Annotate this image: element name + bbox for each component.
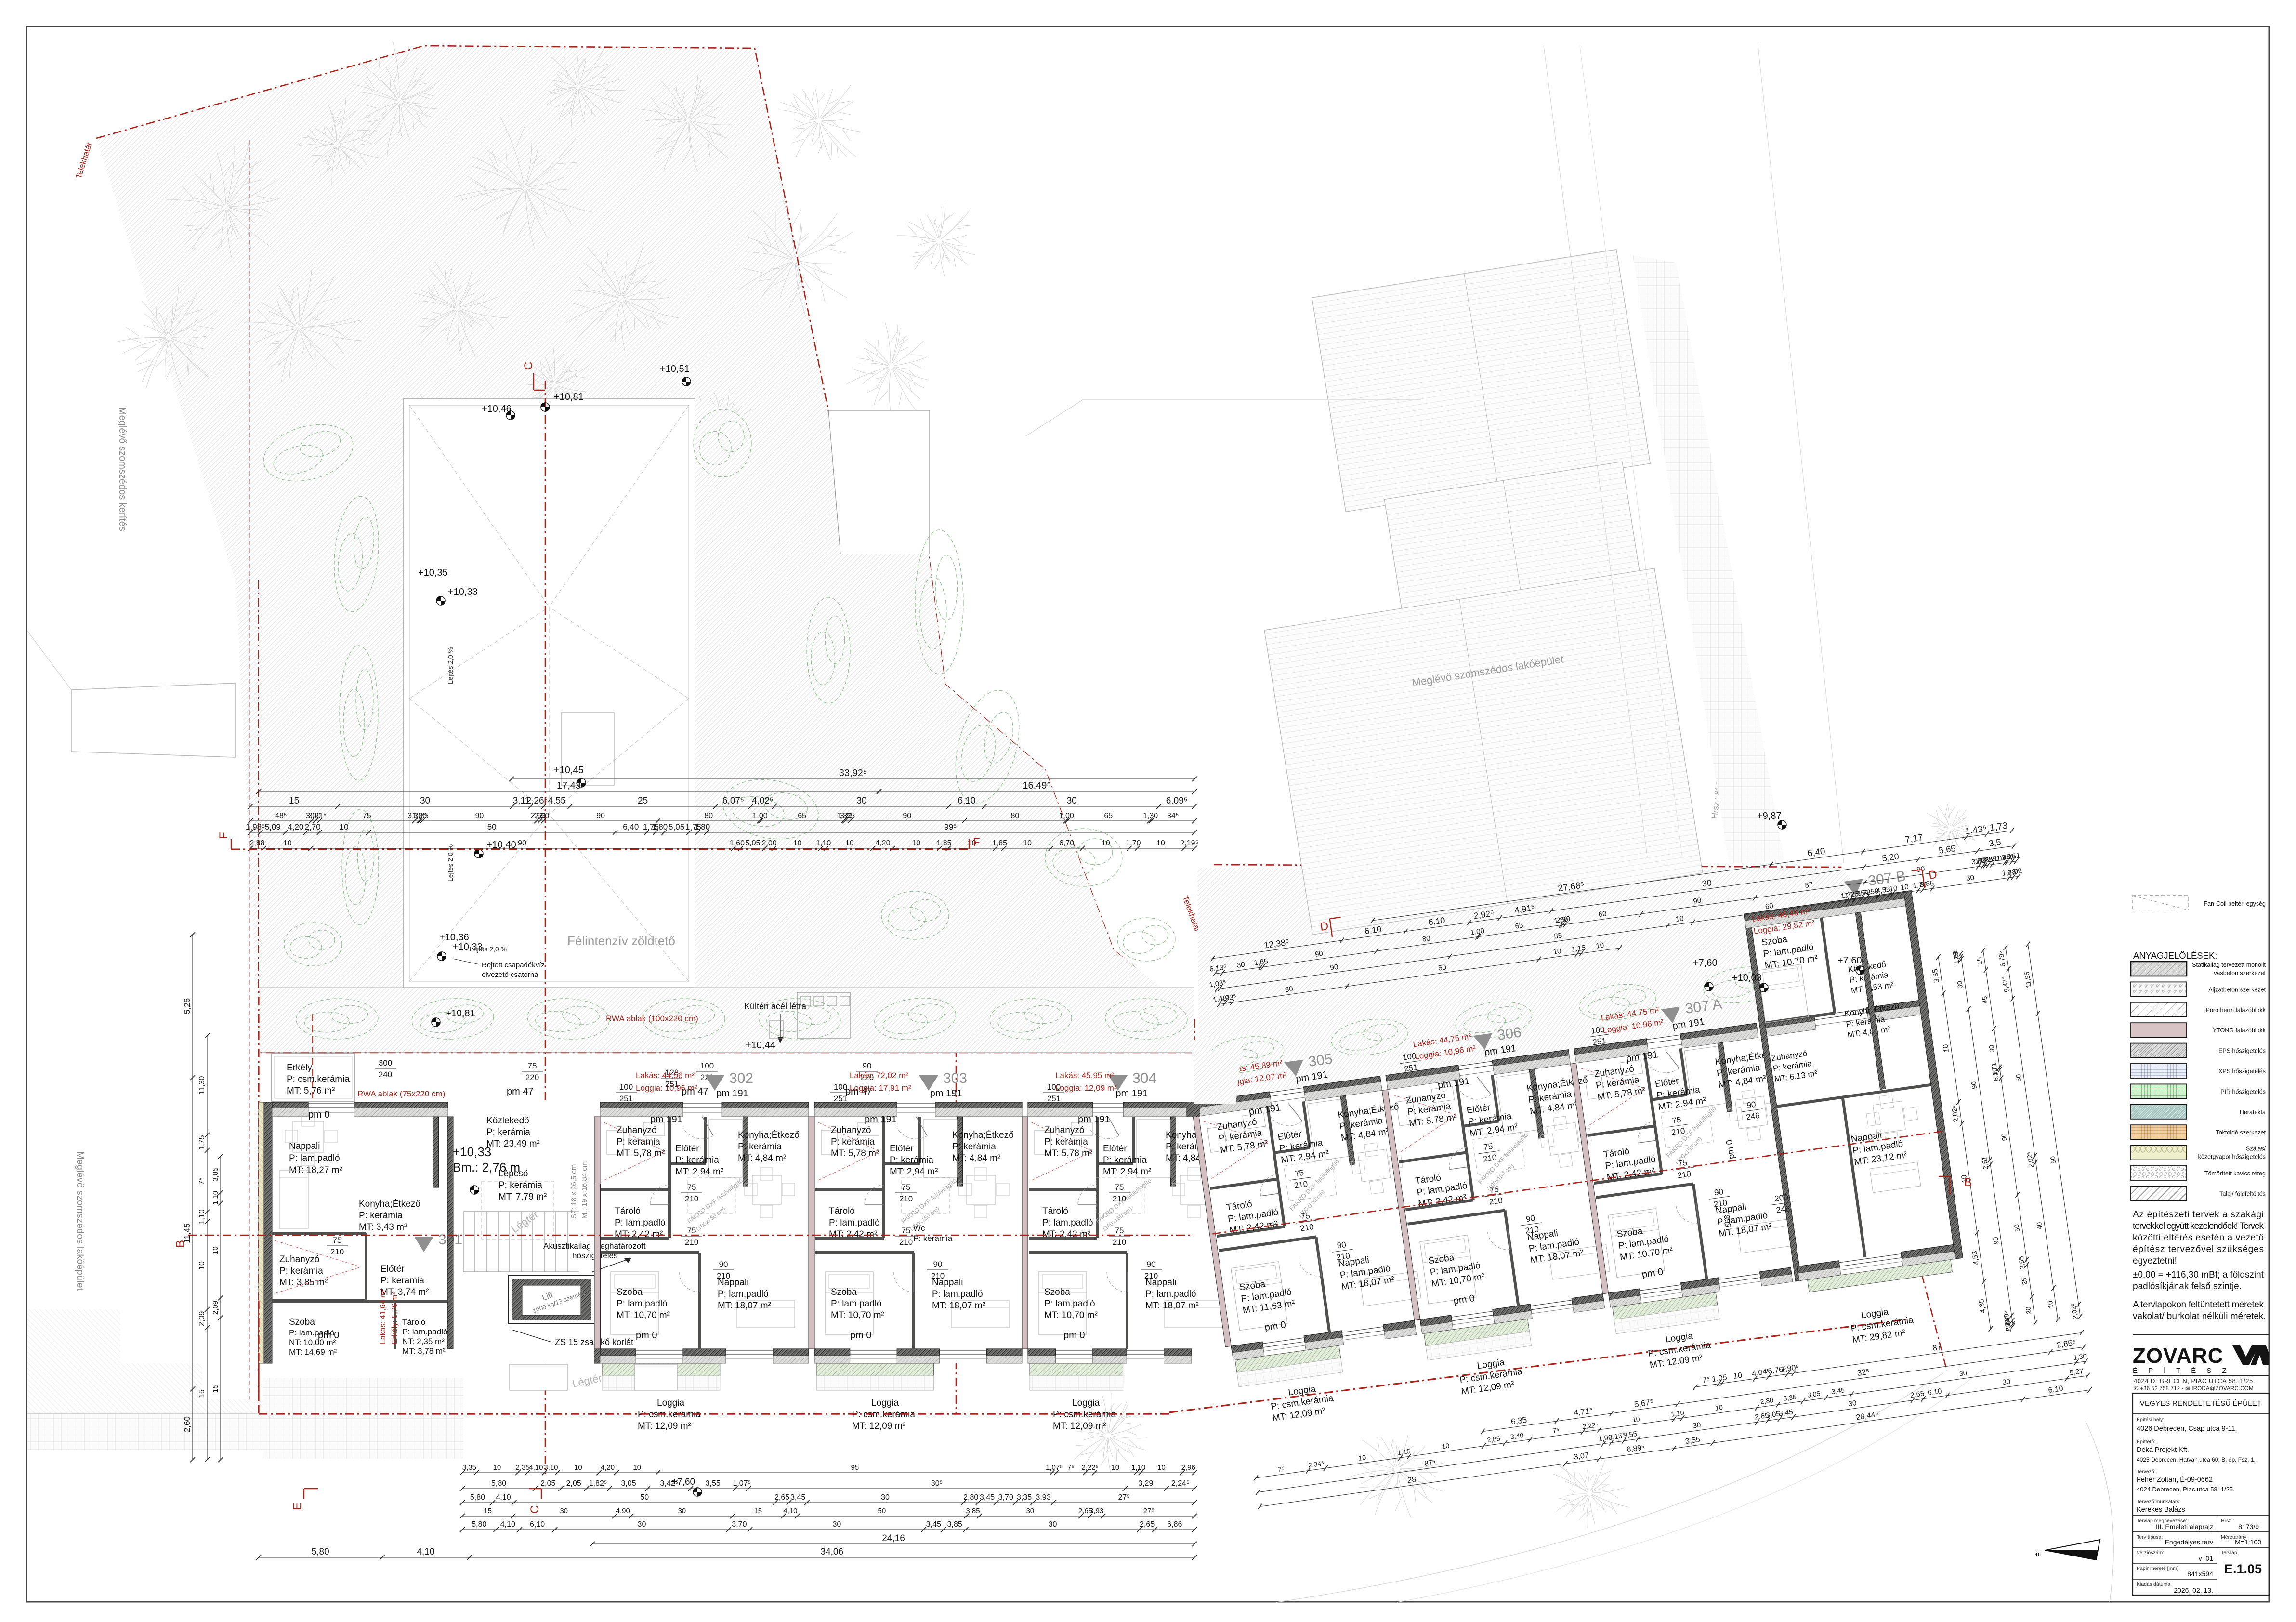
svg-text:4,02⁵: 4,02⁵ — [752, 796, 774, 806]
svg-text:210: 210 — [1294, 1179, 1309, 1190]
svg-text:75: 75 — [1115, 1226, 1124, 1235]
svg-text:3,45: 3,45 — [980, 1493, 995, 1502]
svg-text:90: 90 — [596, 812, 605, 820]
svg-text:Lakás: 72,02 m²: Lakás: 72,02 m² — [850, 1071, 908, 1080]
svg-text:10: 10 — [493, 1464, 501, 1472]
svg-text:1,80: 1,80 — [652, 822, 668, 831]
svg-text:4,10: 4,10 — [783, 1507, 797, 1515]
svg-text:MT: 2,42 m²: MT: 2,42 m² — [1042, 1229, 1090, 1240]
svg-text:5,80: 5,80 — [472, 1520, 486, 1529]
svg-text:8173/9: 8173/9 — [2238, 1523, 2259, 1530]
svg-text:6,86: 6,86 — [1167, 1520, 1182, 1529]
svg-text:pm 191: pm 191 — [930, 1088, 962, 1099]
svg-text:5,80: 5,80 — [491, 1479, 506, 1488]
svg-text:MT: 4,84 m²: MT: 4,84 m² — [738, 1153, 786, 1163]
svg-text:90: 90 — [1147, 1260, 1156, 1269]
svg-text:5,05: 5,05 — [669, 822, 684, 831]
svg-text:3,5: 3,5 — [1988, 837, 2002, 848]
svg-text:1,85: 1,85 — [936, 839, 951, 847]
svg-text:1,00: 1,00 — [1059, 812, 1074, 820]
svg-text:P: lam.padló: P: lam.padló — [615, 1218, 666, 1228]
svg-text:P: lam.padló: P: lam.padló — [829, 1218, 880, 1228]
svg-text:1,70: 1,70 — [1126, 839, 1141, 847]
svg-text:210: 210 — [899, 1238, 913, 1247]
svg-text:4,20: 4,20 — [601, 1464, 615, 1472]
svg-text:75: 75 — [687, 1183, 696, 1192]
svg-text:1,07⁵: 1,07⁵ — [1046, 1464, 1063, 1472]
svg-text:2026. 02. 13.: 2026. 02. 13. — [2174, 1586, 2213, 1594]
svg-text:Loggia: 17,91 m²: Loggia: 17,91 m² — [850, 1083, 911, 1093]
svg-text:Közlekedő: Közlekedő — [486, 1116, 529, 1126]
svg-text:75: 75 — [1489, 1185, 1499, 1195]
svg-text:tervekkel együtt kezelendőek!: tervekkel együtt kezelendőek! Tervek — [2133, 1221, 2264, 1231]
svg-text:1,75: 1,75 — [414, 812, 429, 820]
svg-text:34⁵: 34⁵ — [1167, 812, 1179, 820]
svg-text:PIR hőszigetelés: PIR hőszigetelés — [2220, 1088, 2266, 1095]
svg-text:10: 10 — [1156, 839, 1165, 847]
svg-text:210: 210 — [1524, 1225, 1539, 1236]
svg-text:MT: 3,78 m²: MT: 3,78 m² — [402, 1346, 446, 1356]
svg-text:Lejtés 2,0 %: Lejtés 2,0 % — [470, 945, 507, 953]
svg-text:30: 30 — [881, 1493, 890, 1502]
svg-text:EPS hőszigetelés: EPS hőszigetelés — [2218, 1048, 2266, 1055]
svg-text:2,22⁵: 2,22⁵ — [1081, 1464, 1098, 1472]
svg-text:F: F — [973, 836, 980, 849]
svg-text:4,55: 4,55 — [548, 796, 566, 806]
svg-text:P: lam.padló: P: lam.padló — [1145, 1289, 1196, 1299]
svg-text:+10,35: +10,35 — [418, 567, 448, 578]
svg-text:pm 191: pm 191 — [1115, 1088, 1148, 1099]
svg-text:MT: 14,69 m²: MT: 14,69 m² — [289, 1347, 337, 1357]
svg-text:kőzetgyapot hőszigetelés: kőzetgyapot hőszigetelés — [2198, 1154, 2266, 1160]
svg-text:MT: 2,94 m²: MT: 2,94 m² — [675, 1167, 723, 1177]
svg-text:30: 30 — [1959, 1369, 1968, 1378]
svg-text:MT: 5,76 m²: MT: 5,76 m² — [287, 1086, 335, 1096]
svg-text:50: 50 — [1438, 963, 1447, 973]
svg-text:210: 210 — [1677, 1169, 1692, 1180]
svg-text:251: 251 — [834, 1094, 847, 1103]
svg-text:MT: 7,79 m²: MT: 7,79 m² — [499, 1192, 547, 1202]
svg-text:75: 75 — [528, 1061, 537, 1070]
svg-text:33,92⁵: 33,92⁵ — [839, 768, 867, 778]
svg-text:P: kerámia: P: kerámia — [675, 1155, 719, 1165]
svg-text:Loggia: 12,09 m²: Loggia: 12,09 m² — [1055, 1083, 1117, 1093]
svg-text:90: 90 — [475, 812, 484, 820]
svg-text:60: 60 — [1765, 902, 1774, 911]
svg-text:3,55: 3,55 — [706, 1479, 721, 1488]
svg-text:MT: 12,09 m²: MT: 12,09 m² — [1053, 1421, 1106, 1431]
svg-text:4,10: 4,10 — [417, 1547, 434, 1557]
svg-text:251: 251 — [1592, 1036, 1607, 1047]
svg-text:3,35: 3,35 — [462, 1464, 476, 1472]
svg-text:2,60: 2,60 — [183, 1416, 192, 1432]
svg-text:pm 47: pm 47 — [507, 1086, 534, 1097]
svg-text:P: lam.padló: P: lam.padló — [932, 1289, 983, 1299]
svg-text:251: 251 — [1047, 1094, 1061, 1103]
svg-text:E: E — [291, 1503, 304, 1510]
svg-text:P: csm.kerámia: P: csm.kerámia — [287, 1074, 350, 1084]
svg-text:4,20: 4,20 — [875, 839, 890, 847]
svg-text:304: 304 — [1132, 1070, 1156, 1086]
svg-text:87⁵: 87⁵ — [1424, 1458, 1436, 1468]
svg-text:85: 85 — [1554, 931, 1563, 940]
svg-text:1,30: 1,30 — [1143, 812, 1158, 820]
svg-text:24,16: 24,16 — [882, 1533, 905, 1543]
svg-text:2,19⁵: 2,19⁵ — [1180, 839, 1198, 847]
svg-text:75: 75 — [363, 812, 371, 820]
svg-text:65: 65 — [1104, 812, 1113, 820]
svg-text:10: 10 — [1675, 914, 1684, 923]
svg-text:vasbeton szerkezet: vasbeton szerkezet — [2214, 970, 2266, 976]
svg-text:Lépcső: Lépcső — [499, 1169, 528, 1179]
svg-text:210: 210 — [1713, 1198, 1728, 1209]
svg-text:2,65: 2,65 — [774, 1493, 789, 1502]
svg-text:Szoba: Szoba — [289, 1317, 315, 1327]
svg-text:30: 30 — [1067, 796, 1077, 806]
svg-text:MT: 4,84 m²: MT: 4,84 m² — [952, 1153, 1000, 1163]
svg-text:75: 75 — [1294, 1168, 1304, 1178]
svg-text:30: 30 — [856, 796, 866, 806]
svg-text:P: kerámia: P: kerámia — [831, 1137, 875, 1147]
svg-text:48⁵: 48⁵ — [275, 812, 287, 820]
svg-text:80: 80 — [704, 812, 713, 820]
svg-text:210: 210 — [1336, 1251, 1351, 1262]
svg-text:60: 60 — [1598, 910, 1607, 919]
svg-text:6,09⁵: 6,09⁵ — [1166, 796, 1188, 806]
svg-text:vakolat/ burkolat nélküli mére: vakolat/ burkolat nélküli méretek. — [2133, 1311, 2266, 1321]
svg-text:90: 90 — [1714, 1187, 1724, 1197]
svg-text:3,85: 3,85 — [966, 1507, 980, 1515]
svg-text:30: 30 — [1955, 980, 1964, 989]
svg-text:5,80: 5,80 — [470, 1493, 485, 1502]
svg-text:+9,87: +9,87 — [1757, 811, 1782, 821]
svg-text:M.: 19 x 16,84 cm: M.: 19 x 16,84 cm — [580, 1161, 589, 1219]
svg-text:10: 10 — [845, 839, 854, 847]
svg-text:17,43: 17,43 — [557, 780, 581, 791]
svg-text:210: 210 — [1299, 1222, 1314, 1233]
svg-text:B: B — [1964, 1176, 1972, 1189]
svg-text:pm 0: pm 0 — [318, 1330, 339, 1341]
svg-text:75: 75 — [1300, 1211, 1311, 1221]
svg-text:MT: 10,70 m²: MT: 10,70 m² — [617, 1310, 670, 1320]
svg-text:+10,81: +10,81 — [446, 1008, 475, 1019]
svg-text:2,65: 2,65 — [1140, 1520, 1155, 1529]
svg-text:30: 30 — [678, 1507, 686, 1515]
svg-text:Lakás: 41,64 m²: Lakás: 41,64 m² — [379, 1289, 387, 1344]
svg-text:3,95: 3,95 — [840, 812, 855, 820]
svg-text:Zuhanyzó: Zuhanyzó — [831, 1125, 871, 1135]
svg-text:P: kerámia: P: kerámia — [279, 1266, 323, 1276]
svg-text:10: 10 — [2046, 1300, 2055, 1309]
svg-text:P: kerámia: P: kerámia — [617, 1137, 660, 1147]
svg-text:7⁵: 7⁵ — [198, 1177, 206, 1185]
svg-text:90: 90 — [903, 812, 911, 820]
svg-text:75: 75 — [902, 1183, 911, 1192]
svg-text:90: 90 — [1337, 1240, 1347, 1250]
svg-text:3,70: 3,70 — [998, 1493, 1013, 1502]
svg-text:210: 210 — [685, 1194, 698, 1203]
svg-text:1,60: 1,60 — [730, 839, 745, 847]
svg-text:4,10: 4,10 — [496, 1493, 511, 1502]
svg-text:80: 80 — [1422, 935, 1431, 944]
svg-text:építész tervezővel szükséges: építész tervezővel szükséges — [2133, 1244, 2264, 1254]
svg-text:210: 210 — [685, 1238, 698, 1247]
svg-text:4025 Debrecen, Hatvan utca 60.: 4025 Debrecen, Hatvan utca 60. B. ép. Fs… — [2137, 1456, 2256, 1463]
svg-text:Erkély: 5,76 m²: Erkély: 5,76 m² — [391, 1292, 399, 1344]
svg-text:65: 65 — [1515, 921, 1524, 930]
svg-text:6,07⁵: 6,07⁵ — [722, 796, 744, 806]
svg-text:M=1:100: M=1:100 — [2235, 1538, 2261, 1546]
svg-text:P: kerámia: P: kerámia — [1044, 1137, 1088, 1147]
svg-text:P: kerámia: P: kerámia — [359, 1211, 403, 1221]
svg-text:Előtér: Előtér — [1103, 1144, 1127, 1154]
svg-text:3,35: 3,35 — [1017, 1493, 1032, 1502]
svg-text:Tervlap:: Tervlap: — [2221, 1550, 2239, 1556]
svg-text:MT: 5,78 m²: MT: 5,78 m² — [831, 1148, 879, 1159]
svg-text:10: 10 — [1715, 1403, 1723, 1412]
svg-text:+10,33: +10,33 — [453, 1145, 491, 1159]
svg-text:7⁵: 7⁵ — [1552, 1426, 1560, 1435]
svg-text:egyeztetni!: egyeztetni! — [2133, 1256, 2177, 1266]
svg-text:P: lam.padló: P: lam.padló — [1044, 1299, 1095, 1309]
svg-text:2,05: 2,05 — [566, 1479, 581, 1488]
svg-text:pm 191: pm 191 — [650, 1114, 682, 1125]
svg-text:2,35: 2,35 — [516, 1464, 530, 1472]
svg-text:10: 10 — [1900, 883, 1909, 892]
svg-text:Tároló: Tároló — [402, 1318, 425, 1327]
svg-text:Fan-Coil beltéri egység: Fan-Coil beltéri egység — [2204, 900, 2266, 907]
svg-text:30: 30 — [638, 1520, 646, 1529]
svg-text:2,70: 2,70 — [305, 822, 321, 831]
svg-text:P: kerámia: P: kerámia — [890, 1155, 933, 1165]
svg-text:Deka Projekt Kft.: Deka Projekt Kft. — [2137, 1446, 2189, 1454]
svg-text:210: 210 — [931, 1271, 945, 1280]
svg-text:1,75: 1,75 — [198, 1135, 206, 1150]
svg-text:ZOVARC: ZOVARC — [2133, 1344, 2224, 1368]
svg-text:30: 30 — [2002, 1377, 2011, 1386]
svg-text:Tervező munkatárs:: Tervező munkatárs: — [2137, 1499, 2181, 1504]
svg-text:30: 30 — [1692, 1421, 1702, 1430]
svg-text:Szoba: Szoba — [831, 1287, 857, 1297]
svg-text:P: kerámia: P: kerámia — [486, 1127, 530, 1137]
svg-text:Konyha;Étkező: Konyha;Étkező — [738, 1130, 800, 1140]
svg-text:4024 Debrecen, Piac utca 58. 1: 4024 Debrecen, Piac utca 58. 1/25. — [2137, 1486, 2235, 1493]
svg-text:2,80: 2,80 — [963, 1493, 978, 1502]
svg-text:MT: 12,09 m²: MT: 12,09 m² — [852, 1421, 905, 1431]
svg-text:90: 90 — [1525, 1213, 1535, 1224]
svg-text:30: 30 — [1987, 1044, 1996, 1053]
svg-text:Lejtés 2,0 %: Lejtés 2,0 % — [446, 647, 454, 684]
svg-text:80: 80 — [1011, 812, 1020, 820]
svg-text:240: 240 — [379, 1070, 392, 1079]
svg-text:P: kerámia: P: kerámia — [738, 1142, 782, 1152]
svg-text:Loggia: Loggia — [657, 1398, 684, 1408]
svg-text:RWA ablak (100x220 cm): RWA ablak (100x220 cm) — [606, 1014, 698, 1023]
svg-text:Építési hely:: Építési hely: — [2137, 1416, 2164, 1423]
svg-text:210: 210 — [1488, 1196, 1503, 1207]
svg-text:87: 87 — [1804, 881, 1813, 890]
svg-text:3,21⁵: 3,21⁵ — [308, 812, 327, 820]
svg-text:VEGYES RENDELTETÉSŰ ÉPÜLET: VEGYES RENDELTETÉSŰ ÉPÜLET — [2140, 1399, 2262, 1408]
svg-text:Erkély: Erkély — [287, 1063, 312, 1073]
svg-text:2,96: 2,96 — [1181, 1464, 1195, 1472]
svg-text:2,09: 2,09 — [211, 1301, 220, 1315]
svg-text:90: 90 — [1991, 1236, 2000, 1245]
svg-text:251: 251 — [619, 1094, 633, 1103]
svg-text:5,05: 5,05 — [745, 839, 760, 847]
svg-text:5,80: 5,80 — [312, 1547, 329, 1557]
svg-text:6,70: 6,70 — [1059, 839, 1074, 847]
svg-text:pm 191: pm 191 — [1078, 1114, 1110, 1125]
svg-text:3,10: 3,10 — [544, 1464, 558, 1472]
svg-text:30: 30 — [1701, 878, 1712, 889]
svg-text:10: 10 — [1157, 1464, 1166, 1472]
svg-text:210: 210 — [899, 1194, 913, 1203]
svg-text:MT: 3,85 m²: MT: 3,85 m² — [279, 1278, 328, 1288]
svg-text:1,00: 1,00 — [753, 812, 768, 820]
svg-text:50: 50 — [640, 1493, 649, 1502]
svg-text:75: 75 — [1671, 1115, 1681, 1125]
svg-text:15: 15 — [211, 1385, 220, 1393]
svg-text:75: 75 — [1115, 1183, 1124, 1192]
svg-text:Zuhanyzó: Zuhanyzó — [1044, 1125, 1084, 1135]
svg-text:Papír mérete [mm]:: Papír mérete [mm]: — [2137, 1566, 2180, 1571]
svg-text:27⁵: 27⁵ — [1143, 1507, 1155, 1515]
svg-text:SZ: 18 x 26,5 cm: SZ: 18 x 26,5 cm — [570, 1164, 578, 1219]
svg-text:2,05: 2,05 — [540, 1479, 555, 1488]
svg-text:pm 0: pm 0 — [1063, 1330, 1085, 1341]
svg-text:+10,81: +10,81 — [554, 392, 584, 402]
svg-text:Kiadás dátuma:: Kiadás dátuma: — [2137, 1582, 2172, 1587]
svg-text:É: É — [2035, 1552, 2043, 1557]
svg-text:305: 305 — [1307, 1051, 1333, 1070]
svg-text:30: 30 — [560, 1507, 568, 1515]
svg-text:Szálas/: Szálas/ — [2246, 1146, 2266, 1152]
svg-text:10: 10 — [912, 839, 920, 847]
svg-text:30: 30 — [1026, 1507, 1034, 1515]
svg-text:10: 10 — [1733, 1371, 1743, 1381]
svg-text:45: 45 — [1981, 996, 1989, 1004]
svg-text:P: lam.padló: P: lam.padló — [718, 1289, 769, 1299]
svg-text:210: 210 — [330, 1247, 344, 1256]
svg-text:2,90: 2,90 — [534, 812, 549, 820]
svg-text:1,10: 1,10 — [211, 1191, 220, 1205]
svg-text:F: F — [217, 832, 230, 839]
svg-text:3,85: 3,85 — [947, 1520, 962, 1529]
svg-text:Az építészeti tervek a szakági: Az építészeti tervek a szakági — [2133, 1210, 2264, 1220]
svg-text:4026 Debrecen, Csap utca 9-11.: 4026 Debrecen, Csap utca 9-11. — [2137, 1425, 2237, 1433]
svg-text:251: 251 — [665, 1080, 679, 1089]
svg-text:210: 210 — [717, 1271, 730, 1280]
svg-text:2,24⁵: 2,24⁵ — [1171, 1479, 1190, 1488]
svg-text:90: 90 — [719, 1260, 728, 1269]
svg-text:302: 302 — [729, 1070, 753, 1086]
svg-text:3,45: 3,45 — [926, 1520, 941, 1529]
svg-text:303: 303 — [943, 1070, 967, 1086]
svg-text:P: lam.padló: P: lam.padló — [617, 1299, 668, 1309]
svg-text:3,05: 3,05 — [621, 1479, 636, 1488]
svg-text:87: 87 — [1932, 1343, 1942, 1352]
svg-text:90: 90 — [1692, 897, 1702, 906]
svg-text:MT: 18,07 m²: MT: 18,07 m² — [932, 1301, 985, 1311]
svg-text:50: 50 — [2048, 1156, 2057, 1164]
svg-text:10: 10 — [211, 1246, 220, 1254]
svg-text:elvezető csatorna: elvezető csatorna — [482, 971, 538, 979]
svg-text:4,10: 4,10 — [529, 1464, 543, 1472]
svg-text:P: lam.padló: P: lam.padló — [831, 1299, 882, 1309]
svg-text:90: 90 — [1969, 1081, 1978, 1090]
svg-text:90: 90 — [1746, 1100, 1756, 1110]
svg-text:25: 25 — [2020, 1277, 2029, 1286]
svg-text:10: 10 — [1358, 1453, 1367, 1462]
svg-text:2,09: 2,09 — [198, 1311, 206, 1326]
svg-text:3,85: 3,85 — [211, 1167, 220, 1181]
svg-text:Terv típusa:: Terv típusa: — [2137, 1534, 2163, 1540]
svg-text:30⁵: 30⁵ — [931, 1479, 943, 1488]
svg-text:MT: 10,70 m²: MT: 10,70 m² — [1044, 1310, 1098, 1320]
svg-text:6,10: 6,10 — [530, 1520, 545, 1529]
svg-text:4024 DEBRECEN, PIAC UTCA 58. 1: 4024 DEBRECEN, PIAC UTCA 58. 1/25. — [2134, 1377, 2255, 1385]
svg-text:Félintenzív zöldtető: Félintenzív zöldtető — [567, 934, 675, 948]
svg-text:Wc: Wc — [913, 1224, 925, 1233]
svg-text:7⁵: 7⁵ — [1702, 1376, 1711, 1385]
svg-text:75: 75 — [687, 1226, 696, 1235]
svg-text:306: 306 — [1496, 1024, 1522, 1043]
svg-text:27⁵: 27⁵ — [1118, 1493, 1129, 1502]
svg-text:+10,46: +10,46 — [482, 404, 512, 414]
svg-text:Szoba: Szoba — [1044, 1287, 1070, 1297]
svg-text:Előtér: Előtér — [380, 1264, 405, 1274]
svg-text:Meglévő szomszédos kerítés: Meglévő szomszédos kerítés — [117, 407, 128, 531]
svg-text:ANYAGJELÖLÉSEK:: ANYAGJELÖLÉSEK: — [2133, 950, 2217, 961]
svg-text:10: 10 — [1553, 947, 1562, 956]
svg-text:YTONG falazóblokk: YTONG falazóblokk — [2213, 1027, 2266, 1034]
svg-text:15: 15 — [484, 1507, 492, 1515]
svg-text:MT: 5,78 m²: MT: 5,78 m² — [1044, 1148, 1092, 1159]
svg-text:20: 20 — [2024, 1306, 2033, 1315]
svg-text:P: lam.padló: P: lam.padló — [402, 1327, 448, 1336]
svg-text:+10,33: +10,33 — [448, 587, 478, 597]
svg-text:210: 210 — [1671, 1126, 1686, 1137]
svg-text:P: kerámia: P: kerámia — [380, 1276, 424, 1286]
svg-text:100: 100 — [700, 1061, 714, 1070]
svg-text:4,20: 4,20 — [288, 822, 303, 831]
svg-text:10: 10 — [1942, 1044, 1951, 1053]
svg-text:65: 65 — [798, 812, 806, 820]
svg-text:Loggia: Loggia — [1072, 1398, 1100, 1408]
svg-text:10: 10 — [340, 822, 349, 831]
svg-text:Előtér: Előtér — [890, 1144, 914, 1154]
svg-text:+10,51: +10,51 — [660, 364, 690, 374]
svg-text:1,10: 1,10 — [816, 839, 831, 847]
svg-text:75: 75 — [1678, 1158, 1688, 1168]
svg-text:A tervlapokon feltüntetett mér: A tervlapokon feltüntetett méretek — [2133, 1300, 2264, 1310]
svg-text:210: 210 — [1144, 1271, 1158, 1280]
svg-text:10: 10 — [1111, 1464, 1119, 1472]
svg-text:MT: 2,94 m²: MT: 2,94 m² — [890, 1167, 938, 1177]
svg-text:2,26⁵: 2,26⁵ — [526, 796, 548, 806]
svg-text:30: 30 — [1848, 1399, 1857, 1408]
svg-text:Heratekta: Heratekta — [2240, 1109, 2266, 1116]
svg-text:5,09: 5,09 — [265, 822, 281, 831]
svg-text:Tároló: Tároló — [829, 1206, 855, 1216]
svg-text:Szoba: Szoba — [617, 1287, 643, 1297]
svg-text:90: 90 — [2000, 1133, 2008, 1141]
svg-text:E.1.05: E.1.05 — [2224, 1562, 2262, 1576]
svg-text:10: 10 — [574, 1464, 582, 1472]
svg-text:15: 15 — [198, 1389, 206, 1398]
svg-text:MT: 3,43 m²: MT: 3,43 m² — [359, 1222, 407, 1232]
